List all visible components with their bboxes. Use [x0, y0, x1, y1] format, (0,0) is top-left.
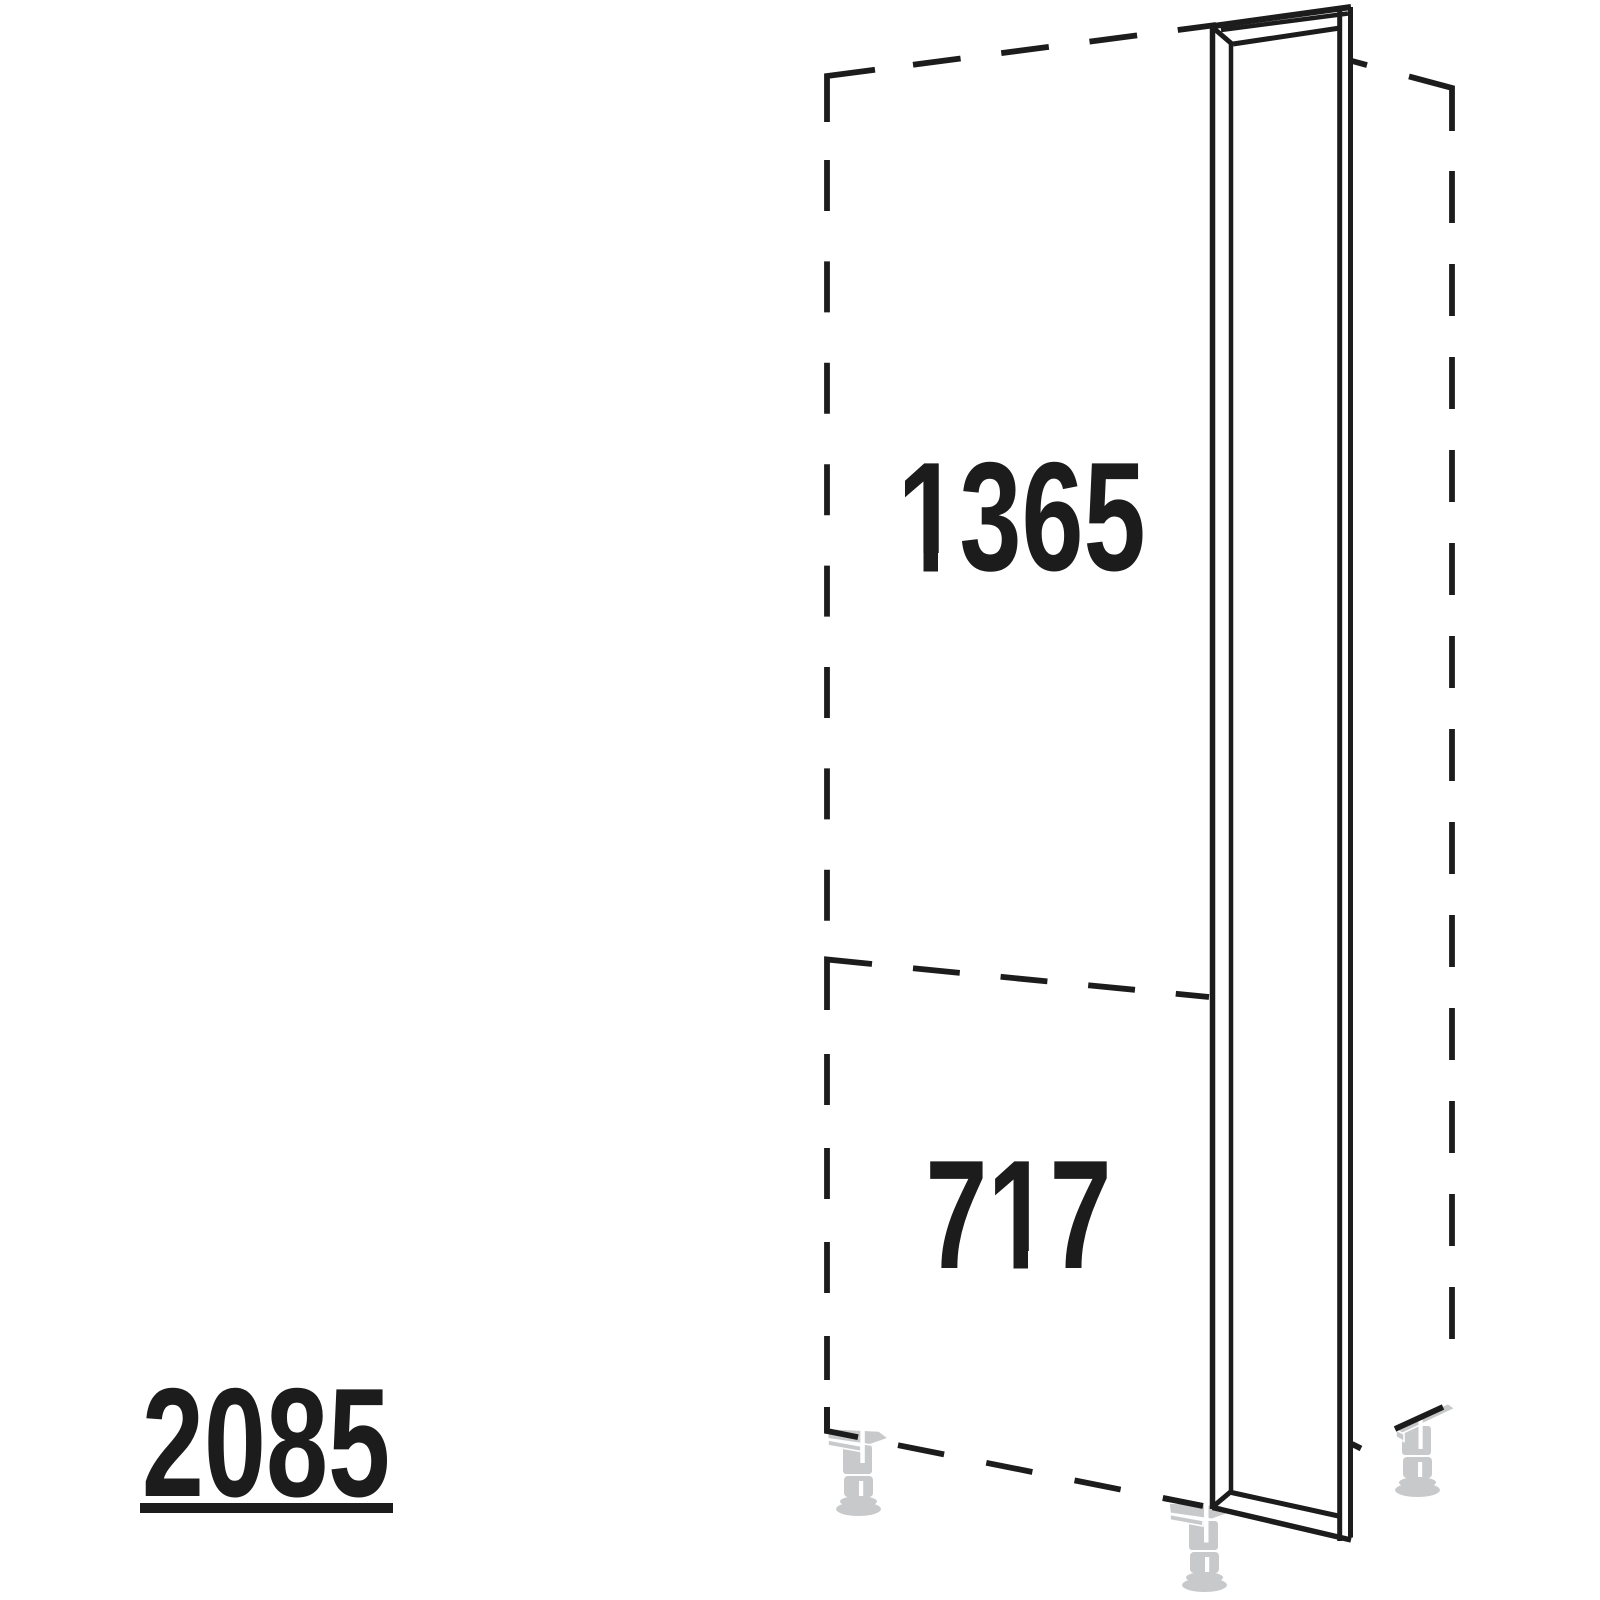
svg-text:1365: 1365	[897, 430, 1145, 603]
svg-text:717: 717	[925, 1128, 1111, 1301]
